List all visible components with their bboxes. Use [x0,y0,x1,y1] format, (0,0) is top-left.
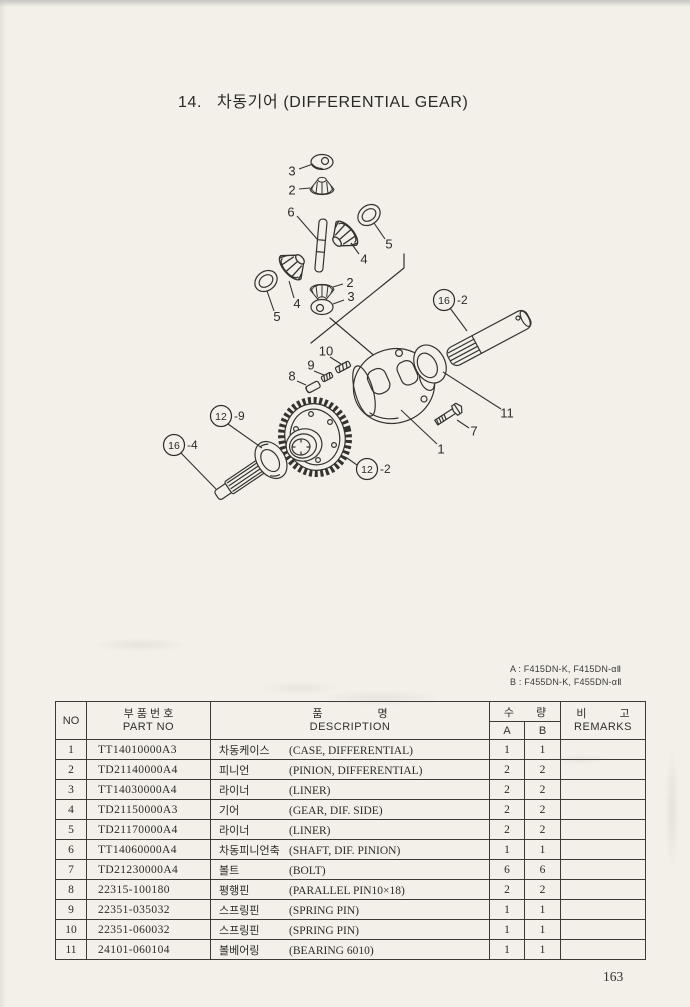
part-pinion-shaft [315,219,328,272]
table-row: 2 TD21140000A4 피니언(PINION, DIFFERENTIAL)… [56,760,646,780]
part-side-cap-bottom [311,300,333,315]
cell-row-no: 5 [56,820,87,840]
callout-5-left: 5 [267,291,281,324]
cell-part-no: TD21150000A3 [87,800,211,820]
header-qty-a: A [490,722,525,740]
svg-text:4: 4 [360,252,367,267]
svg-text:12: 12 [215,411,227,423]
exploded-diagram: 3 2 6 5 4 4 5 2 [140,135,570,540]
cell-description: 볼트(BOLT) [211,860,490,880]
callout-9: 9 [307,358,324,376]
svg-text:5: 5 [385,237,392,252]
table-row: 7 TD21230000A4 볼트(BOLT) 6 6 [56,860,646,880]
callout-2-top: 2 [288,183,310,198]
cell-description: 기어(GEAR, DIF. SIDE) [211,800,490,820]
part-name-korean: 차동피니언축 [219,842,289,858]
callout-4-left: 4 [289,281,301,311]
part-name-korean: 볼베어링 [219,942,289,958]
cell-part-no: 22315-100180 [87,880,211,900]
svg-text:16: 16 [438,295,450,307]
svg-text:1: 1 [437,442,444,457]
cell-qty-b: 2 [525,760,561,780]
cell-description: 평행핀(PARALLEL PIN10×18) [211,880,490,900]
svg-text:12: 12 [361,464,373,476]
cell-description: 라이너(LINER) [211,780,490,800]
parts-table: NO 부 품 번 호 PART NO 품 명 DESCRIPTION 수 량 비… [55,701,646,960]
part-name-english: (LINER) [289,825,331,837]
cell-row-no: 10 [56,920,87,940]
part-name-english: (GEAR, DIF. SIDE) [289,805,383,817]
cell-remarks [561,820,646,840]
part-name-english: (PARALLEL PIN10×18) [289,885,405,897]
callout-16-4: 16 -4 [164,435,217,490]
cell-row-no: 9 [56,900,87,920]
cell-remarks [561,900,646,920]
cell-qty-a: 2 [490,880,525,900]
part-name-korean: 라이너 [219,822,289,838]
cell-qty-b: 6 [525,860,561,880]
cell-qty-b: 1 [525,900,561,920]
cell-qty-b: 1 [525,940,561,960]
svg-text:4: 4 [293,296,300,311]
svg-text:5: 5 [273,309,280,324]
table-row: 1 TT14010000A3 차동케이스(CASE, DIFFERENTIAL)… [56,740,646,760]
cell-row-no: 4 [56,800,87,820]
callout-6: 6 [287,205,317,240]
table-row: 5 TD21170000A4 라이너(LINER) 2 2 [56,820,646,840]
cell-row-no: 7 [56,860,87,880]
table-row: 10 22351-060032 스프링핀(SPRING PIN) 1 1 [56,920,646,940]
svg-text:10: 10 [319,344,333,359]
cell-part-no: TD21230000A4 [87,860,211,880]
cell-remarks [561,840,646,860]
cell-remarks [561,880,646,900]
part-spline-shaft [445,308,534,368]
cell-remarks [561,740,646,760]
svg-text:2: 2 [288,183,295,198]
part-name-korean: 스프링핀 [219,902,289,918]
svg-text:3: 3 [347,289,354,304]
table-row: 3 TT14030000A4 라이너(LINER) 2 2 [56,780,646,800]
svg-text:8: 8 [288,369,295,384]
cell-qty-b: 1 [525,920,561,940]
callout-12-9: 12 -9 [211,406,263,449]
header-no: NO [56,702,87,740]
cell-qty-b: 2 [525,820,561,840]
cell-part-no: TT14010000A3 [87,740,211,760]
svg-text:3: 3 [288,164,295,179]
cell-qty-a: 2 [490,820,525,840]
model-note-line-b: B : F455DN-K, F455DN-αⅡ [510,676,622,689]
callout-12-2: 12 -2 [347,458,391,480]
cell-description: 라이너(LINER) [211,820,490,840]
cell-qty-a: 2 [490,780,525,800]
svg-text:-4: -4 [187,438,198,452]
model-applicability-note: A : F415DN-K, F415DN-αⅡ B : F455DN-K, F4… [510,663,622,688]
cell-remarks [561,800,646,820]
part-bolt [433,402,464,428]
section-number: 14. [178,94,202,111]
parts-table-body: 1 TT14010000A3 차동케이스(CASE, DIFFERENTIAL)… [56,740,646,960]
part-name-english: (SPRING PIN) [289,905,359,917]
model-note-line-a: A : F415DN-K, F415DN-αⅡ [510,663,622,676]
table-row: 8 22315-100180 평행핀(PARALLEL PIN10×18) 2 … [56,880,646,900]
svg-text:-2: -2 [380,462,391,476]
cell-description: 스프링핀(SPRING PIN) [211,900,490,920]
cell-qty-a: 1 [490,740,525,760]
part-name-english: (LINER) [289,785,331,797]
svg-text:-9: -9 [234,409,245,423]
cell-description: 차동피니언축(SHAFT, DIF. PINION) [211,840,490,860]
callout-5-right: 5 [374,223,393,252]
cell-part-no: TT14030000A4 [87,780,211,800]
part-name-korean: 평행핀 [219,882,289,898]
manual-page: 14.차동기어 (DIFFERENTIAL GEAR) [0,0,690,1007]
header-quantity: 수 량 [490,702,561,722]
part-name-english: (CASE, DIFFERENTIAL) [289,745,413,757]
cell-part-no: 22351-060032 [87,920,211,940]
cell-remarks [561,940,646,960]
part-liner-right [354,200,385,230]
callout-2-bottom: 2 [333,275,354,290]
cell-remarks [561,860,646,880]
svg-text:2: 2 [346,275,353,290]
part-name-korean: 피니언 [219,762,289,778]
svg-text:11: 11 [500,406,514,421]
cell-qty-b: 2 [525,880,561,900]
cell-qty-b: 2 [525,780,561,800]
cell-description: 차동케이스(CASE, DIFFERENTIAL) [211,740,490,760]
table-row: 6 TT14060000A4 차동피니언축(SHAFT, DIF. PINION… [56,840,646,860]
part-spring-pin-small [321,372,333,382]
cell-part-no: TD21170000A4 [87,820,211,840]
part-name-english: (PINION, DIFFERENTIAL) [289,765,423,777]
cell-remarks [561,920,646,940]
callout-3-top: 3 [288,164,313,179]
callout-16-2: 16 -2 [434,290,468,332]
cell-remarks [561,760,646,780]
header-qty-b: B [525,722,561,740]
svg-text:-2: -2 [457,293,468,307]
cell-qty-b: 2 [525,800,561,820]
part-name-english: (BOLT) [289,865,326,877]
cell-qty-b: 1 [525,740,561,760]
cell-part-no: TD21140000A4 [87,760,211,780]
table-row: 11 24101-060104 볼베어링(BEARING 6010) 1 1 [56,940,646,960]
cell-qty-a: 1 [490,840,525,860]
callout-3-bottom: 3 [333,289,355,304]
parts-table-header: NO 부 품 번 호 PART NO 품 명 DESCRIPTION 수 량 비… [56,702,646,740]
svg-text:7: 7 [470,424,477,439]
part-name-korean: 볼트 [219,862,289,878]
part-parallel-pin [305,381,321,394]
cell-row-no: 1 [56,740,87,760]
cell-row-no: 11 [56,940,87,960]
part-name-english: (SHAFT, DIF. PINION) [289,845,400,857]
header-part-no: 부 품 번 호 PART NO [87,702,211,740]
part-name-english: (SPRING PIN) [289,925,359,937]
cell-row-no: 8 [56,880,87,900]
callout-4-right: 4 [351,243,368,267]
svg-text:16: 16 [168,440,180,452]
cell-remarks [561,780,646,800]
part-pinion-top [310,177,334,194]
cell-qty-a: 1 [490,900,525,920]
table-row: 9 22351-035032 스프링핀(SPRING PIN) 1 1 [56,900,646,920]
svg-text:9: 9 [307,358,314,373]
table-row: 4 TD21150000A3 기어(GEAR, DIF. SIDE) 2 2 [56,800,646,820]
cell-part-no: 22351-035032 [87,900,211,920]
part-name-korean: 차동케이스 [219,742,289,758]
cell-qty-a: 1 [490,920,525,940]
section-title: 차동기어 (DIFFERENTIAL GEAR) [217,94,468,111]
cell-qty-a: 2 [490,760,525,780]
part-name-korean: 라이너 [219,782,289,798]
callout-7: 7 [457,420,478,439]
part-spring-pin [335,361,351,373]
cell-qty-b: 1 [525,840,561,860]
page-number: 163 [603,969,623,985]
part-name-english: (BEARING 6010) [289,945,374,957]
callout-8: 8 [288,369,306,386]
cell-row-no: 2 [56,760,87,780]
page-title: 14.차동기어 (DIFFERENTIAL GEAR) [178,88,468,112]
cell-row-no: 6 [56,840,87,860]
cell-description: 피니언(PINION, DIFFERENTIAL) [211,760,490,780]
cell-description: 볼베어링(BEARING 6010) [211,940,490,960]
cell-qty-a: 2 [490,800,525,820]
header-remarks: 비 고 REMARKS [561,702,646,740]
part-liner-left [251,266,282,296]
svg-text:6: 6 [287,205,294,220]
callout-10: 10 [319,344,341,365]
cell-qty-a: 6 [490,860,525,880]
cell-qty-a: 1 [490,940,525,960]
cell-description: 스프링핀(SPRING PIN) [211,920,490,940]
header-description: 품 명 DESCRIPTION [211,702,490,740]
cell-row-no: 3 [56,780,87,800]
part-name-korean: 스프링핀 [219,922,289,938]
part-side-cap-top [311,155,333,170]
part-name-korean: 기어 [219,802,289,818]
cell-part-no: TT14060000A4 [87,840,211,860]
part-side-gear-left [275,246,312,284]
cell-part-no: 24101-060104 [87,940,211,960]
